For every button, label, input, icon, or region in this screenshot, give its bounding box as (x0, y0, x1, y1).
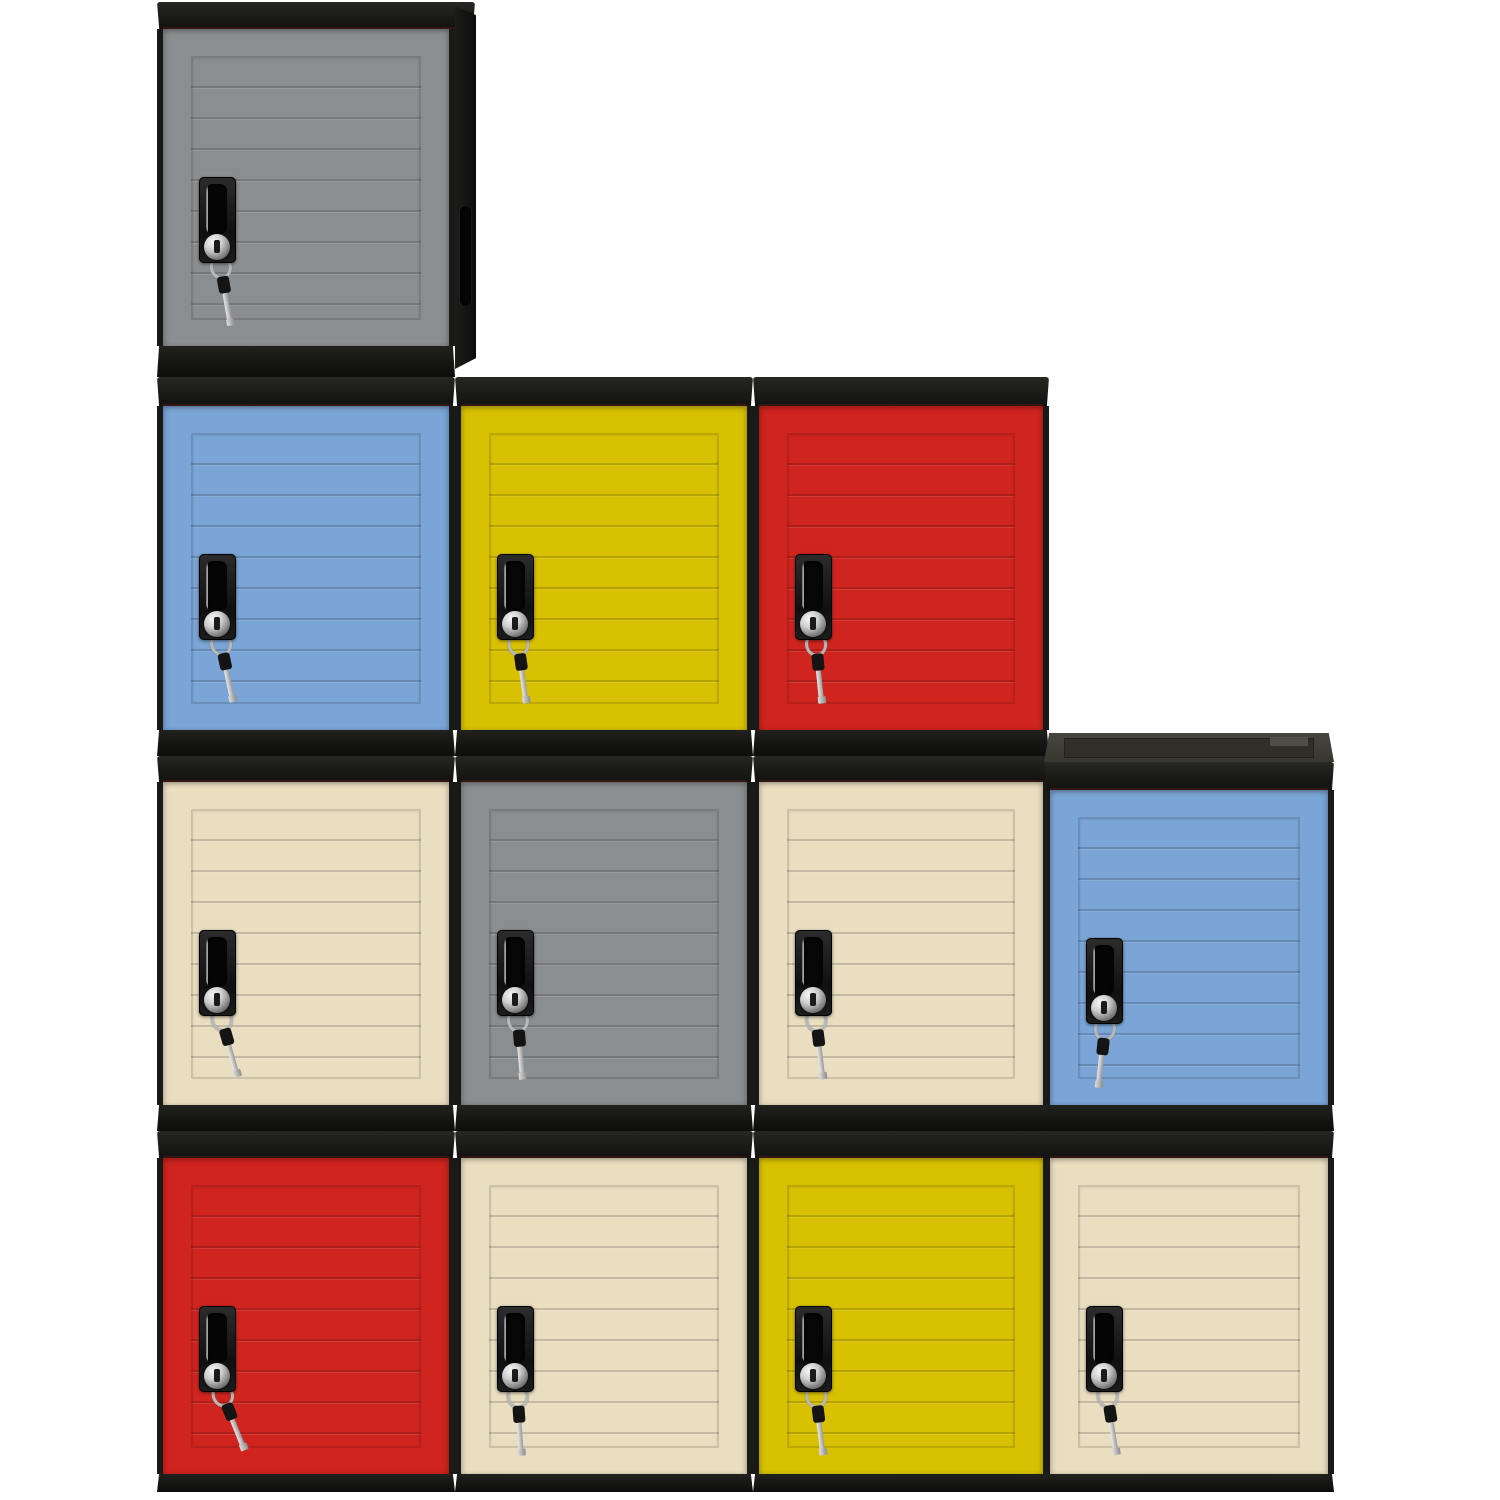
locker-cream-r3c1 (157, 756, 455, 1131)
locker-top-notch (1270, 737, 1308, 746)
locker-door (753, 1158, 1049, 1474)
locker-top-cap (455, 1131, 753, 1158)
locker-door (157, 29, 455, 346)
key-shaft (1109, 1422, 1118, 1448)
key-tip (1095, 1080, 1104, 1088)
door-handle (497, 930, 534, 1016)
keyway-slot-icon (214, 240, 220, 253)
key-shaft (517, 1047, 524, 1073)
locker-base (455, 1474, 753, 1492)
key-tip (522, 696, 531, 704)
keyway-slot-icon (512, 1369, 518, 1382)
key-head (811, 1405, 825, 1423)
door-handle (199, 177, 236, 263)
key-shaft (816, 670, 824, 696)
key-shaft (817, 1422, 825, 1448)
locker-base (157, 1474, 455, 1492)
key-head (512, 1405, 525, 1423)
locker-blue-r3c4 (1044, 733, 1334, 1131)
locker-door (1044, 1158, 1334, 1474)
key-head (514, 653, 528, 672)
door-handle (497, 554, 534, 640)
locker-top-cap (157, 756, 455, 782)
locker-door (157, 782, 455, 1105)
door-handle (199, 554, 236, 640)
keyway-slot-icon (1101, 1369, 1107, 1382)
product-photo-stage (0, 0, 1500, 1500)
handle-grip-slot (206, 1313, 227, 1363)
locker-red-r2c3 (753, 377, 1049, 756)
door-handle (497, 1306, 534, 1392)
keyway-slot-icon (810, 993, 816, 1006)
key-tip (226, 318, 235, 326)
keyway-slot-icon (512, 617, 518, 630)
locker-door (157, 1158, 455, 1474)
side-grip-indent (460, 206, 471, 306)
handle-grip-slot (206, 561, 227, 611)
door-handle (1086, 938, 1123, 1024)
door-handle (1086, 1306, 1123, 1392)
locker-top-cap (455, 756, 753, 782)
locker-top-cap (753, 1131, 1049, 1158)
door-handle (795, 930, 832, 1016)
locker-door (753, 406, 1049, 730)
door-handle (795, 1306, 832, 1392)
key-shaft (817, 1046, 825, 1072)
door-handle (199, 930, 236, 1016)
key-tip (819, 1448, 828, 1456)
key-shaft (224, 669, 234, 695)
key-tip (818, 696, 827, 704)
door-handle (199, 1306, 236, 1392)
handle-grip-slot (206, 184, 227, 234)
locker-base (157, 346, 455, 377)
handle-grip-slot (802, 1313, 823, 1363)
locker-gray-r1c1 (157, 2, 455, 377)
handle-grip-slot (802, 561, 823, 611)
key-head (217, 275, 232, 294)
handle-grip-slot (504, 1313, 525, 1363)
locker-cream-r4c2 (455, 1131, 753, 1492)
locker-base (1044, 1105, 1334, 1131)
keyway-slot-icon (214, 993, 220, 1006)
locker-base (753, 730, 1049, 756)
handle-grip-slot (504, 561, 525, 611)
locker-blue-r2c1 (157, 377, 455, 756)
key-head (811, 653, 825, 671)
locker-top-cap (1044, 1131, 1334, 1158)
locker-base (455, 730, 753, 756)
locker-top-cap (753, 377, 1049, 406)
locker-door (753, 782, 1049, 1105)
key-head (217, 652, 232, 671)
locker-cream-r3c3 (753, 756, 1049, 1131)
locker-door (157, 406, 455, 730)
handle-grip-slot (802, 937, 823, 987)
keyway-slot-icon (214, 1369, 220, 1382)
locker-yellow-r2c2 (455, 377, 753, 756)
locker-side-panel (455, 6, 476, 369)
locker-top-surface (1044, 733, 1334, 762)
key-tip (239, 1442, 249, 1451)
locker-base (157, 1105, 455, 1131)
locker-base (157, 730, 455, 756)
locker-top-cap (1044, 762, 1334, 790)
key-shaft (1096, 1055, 1104, 1081)
key-shaft (230, 1419, 244, 1445)
key-shaft (519, 670, 528, 696)
locker-base (753, 1474, 1049, 1492)
locker-gray-r3c2 (455, 756, 753, 1131)
locker-cream-r4c4 (1044, 1131, 1334, 1492)
key-tip (819, 1072, 828, 1080)
key-shaft (222, 293, 231, 319)
locker-base (753, 1105, 1049, 1131)
keyway-slot-icon (512, 993, 518, 1006)
key-head (219, 1027, 235, 1047)
locker-top-cap (157, 2, 475, 29)
door-handle (795, 554, 832, 640)
handle-grip-slot (504, 937, 525, 987)
locker-top-cap (157, 1131, 455, 1158)
key-shaft (226, 1044, 238, 1070)
locker-yellow-r4c3 (753, 1131, 1049, 1492)
key-shaft (517, 1423, 524, 1449)
key-head (1096, 1037, 1110, 1055)
locker-door (1044, 790, 1334, 1105)
locker-door (455, 406, 753, 730)
keyway-slot-icon (810, 617, 816, 630)
key-head (1103, 1405, 1118, 1424)
locker-base (1044, 1474, 1334, 1492)
key-tip (518, 1072, 527, 1080)
locker-door (455, 1158, 753, 1474)
locker-top-cap (455, 377, 753, 406)
keyway-slot-icon (1101, 1001, 1107, 1014)
handle-grip-slot (1093, 945, 1114, 995)
locker-top-cap (753, 756, 1049, 782)
key-head (513, 1029, 526, 1047)
key-tip (517, 1448, 525, 1456)
keyway-slot-icon (810, 1369, 816, 1382)
locker-top-cap (157, 377, 455, 406)
locker-red-r4c1 (157, 1131, 455, 1492)
handle-grip-slot (1093, 1313, 1114, 1363)
key-head (221, 1402, 238, 1422)
key-head (811, 1029, 825, 1047)
locker-base (455, 1105, 753, 1131)
keyway-slot-icon (214, 617, 220, 630)
handle-grip-slot (206, 937, 227, 987)
key-tip (1112, 1447, 1121, 1455)
locker-door (455, 782, 753, 1105)
